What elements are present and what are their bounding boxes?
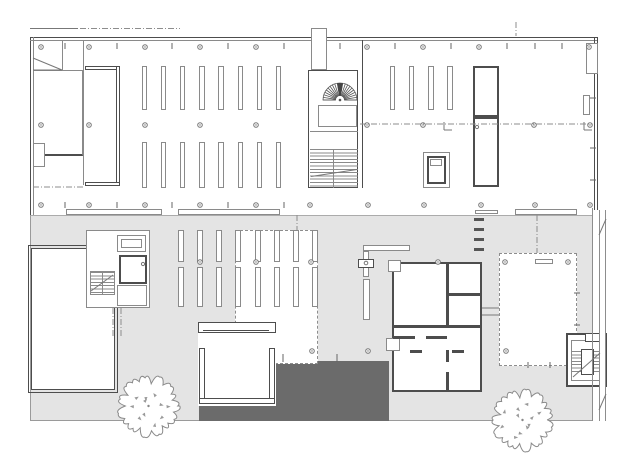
shelf-stack bbox=[216, 267, 222, 307]
partition bbox=[446, 372, 449, 391]
west-stair-divider bbox=[102, 271, 103, 295]
pavilion-left-wall bbox=[199, 348, 205, 404]
shelf-stack bbox=[180, 142, 186, 188]
plaza-step bbox=[474, 238, 484, 241]
shelf-stack bbox=[409, 66, 415, 110]
shelf-stack bbox=[255, 267, 261, 307]
partition bbox=[446, 350, 449, 362]
east-core-upper bbox=[473, 66, 499, 117]
shelf-stack bbox=[312, 267, 318, 307]
pavilion-top-inner-line bbox=[203, 330, 269, 331]
shelf-stack bbox=[218, 66, 224, 110]
cluster-room-bottom bbox=[117, 285, 147, 306]
shelf-stack bbox=[142, 66, 148, 110]
info-desk-top bbox=[363, 245, 410, 251]
plaza-step bbox=[474, 228, 484, 231]
core-east-wall bbox=[362, 40, 363, 188]
edge-bench bbox=[475, 210, 498, 214]
cluster-room-middle bbox=[119, 255, 147, 284]
partition bbox=[447, 293, 481, 296]
floor-plan-canvas bbox=[0, 0, 640, 468]
shelf-stack bbox=[199, 66, 205, 110]
east-pilaster bbox=[583, 95, 590, 115]
shelf-stack bbox=[216, 230, 222, 262]
counter-fixture bbox=[121, 239, 142, 248]
shelf-stack bbox=[293, 230, 299, 262]
shelf-stack bbox=[197, 230, 203, 262]
shelf-stack bbox=[293, 267, 299, 307]
right-gallery-band bbox=[599, 210, 606, 421]
main-stair-icon bbox=[310, 149, 358, 188]
shelf-stack bbox=[447, 66, 453, 110]
shelf-stack bbox=[428, 66, 434, 110]
shelf-stack bbox=[276, 66, 282, 110]
south-building-porch bbox=[386, 338, 400, 351]
east-core-lower bbox=[473, 117, 499, 187]
nw-thick-wall-top bbox=[85, 66, 120, 70]
partition bbox=[426, 336, 447, 339]
shelf-stack bbox=[235, 230, 241, 262]
ne-corner-block bbox=[586, 43, 598, 74]
shelf-stack bbox=[178, 267, 184, 307]
partition bbox=[410, 350, 422, 353]
plaza-step bbox=[474, 248, 484, 251]
info-desk-wall bbox=[363, 279, 370, 320]
shelf-stack bbox=[218, 142, 224, 188]
shelf-stack bbox=[274, 267, 280, 307]
partition bbox=[452, 350, 464, 353]
core-room bbox=[318, 105, 357, 127]
south-building-notch bbox=[388, 260, 401, 272]
shelf-stack bbox=[161, 142, 167, 188]
edge-bench bbox=[515, 209, 577, 215]
shelf-stack bbox=[255, 230, 261, 262]
shelf-stack bbox=[312, 230, 318, 262]
shelf-stack bbox=[274, 230, 280, 262]
nw-vestibule-wall bbox=[62, 40, 63, 70]
shelf-stack bbox=[180, 66, 186, 110]
pavilion-top-bar bbox=[198, 322, 276, 333]
nw-corridor-wall bbox=[83, 40, 84, 185]
shelf-stack bbox=[257, 66, 263, 110]
shelf-stack bbox=[235, 267, 241, 307]
pavilion-bottom-wall bbox=[199, 398, 275, 404]
shelf-stack bbox=[390, 66, 396, 110]
partition bbox=[393, 336, 415, 339]
shelf-stack bbox=[142, 142, 148, 188]
stair-hall-top-line bbox=[310, 131, 358, 132]
edge-bench bbox=[178, 209, 280, 215]
shelf-stack bbox=[197, 267, 203, 307]
shelf-stack bbox=[199, 142, 205, 188]
partition bbox=[393, 325, 480, 328]
shelf-stack bbox=[238, 66, 244, 110]
nw-pier bbox=[33, 143, 45, 167]
edge-bench bbox=[66, 209, 162, 215]
shelf-stack bbox=[161, 66, 167, 110]
shelf-stack bbox=[276, 142, 282, 188]
pavilion-right-wall bbox=[269, 348, 275, 404]
nw-thick-wall-bottom bbox=[85, 182, 120, 186]
pavilion-base bbox=[198, 322, 276, 406]
roof-shaft bbox=[311, 28, 327, 70]
east-dashed-room-bench bbox=[535, 259, 553, 264]
elevator-door bbox=[430, 159, 442, 166]
shelf-stack bbox=[257, 142, 263, 188]
plaza-step bbox=[474, 218, 484, 221]
right-wall-line bbox=[592, 208, 593, 421]
main-stair-divider bbox=[333, 149, 334, 188]
shelf-stack bbox=[238, 142, 244, 188]
nw-thick-wall-right bbox=[116, 66, 120, 186]
info-desk-box bbox=[358, 259, 374, 268]
shelf-stack bbox=[178, 230, 184, 262]
